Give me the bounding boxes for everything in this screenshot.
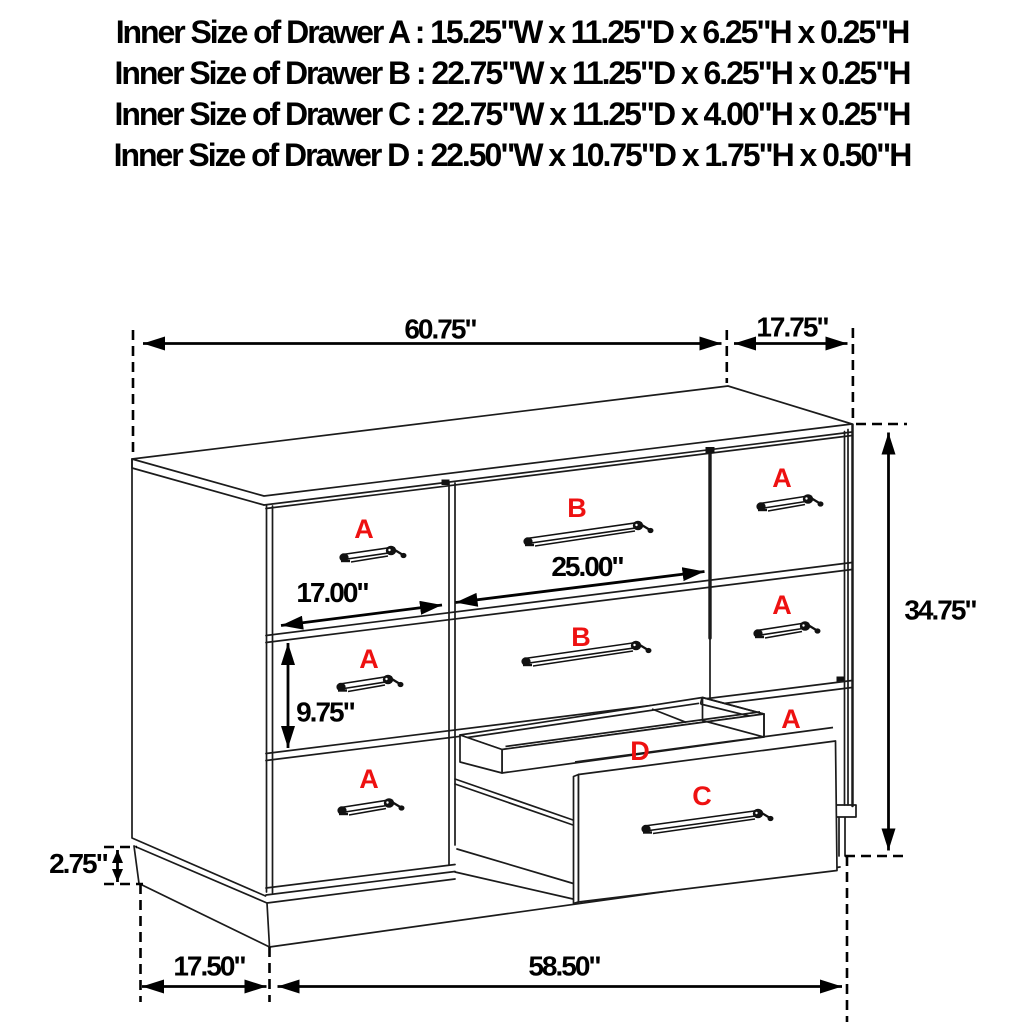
svg-text:2.75": 2.75" [49, 848, 107, 879]
svg-text:17.50": 17.50" [173, 951, 245, 982]
svg-text:A: A [772, 590, 792, 620]
svg-text:A: A [359, 644, 379, 674]
svg-text:17.00": 17.00" [296, 577, 368, 608]
svg-text:58.50": 58.50" [528, 951, 600, 982]
svg-text:Inner Size of Drawer A : 15.25: Inner Size of Drawer A : 15.25"W x 11.25… [116, 14, 909, 50]
svg-text:D: D [630, 736, 650, 766]
svg-text:A: A [772, 463, 792, 493]
svg-text:25.00": 25.00" [551, 551, 623, 582]
svg-text:A: A [354, 514, 374, 544]
svg-text:B: B [567, 493, 587, 523]
svg-text:17.75": 17.75" [756, 312, 828, 343]
svg-text:9.75": 9.75" [296, 697, 354, 728]
svg-text:A: A [359, 764, 379, 794]
svg-text:Inner Size of Drawer D : 22.5: Inner Size of Drawer D : 22.50"W x 10.75… [114, 137, 911, 173]
svg-text:60.75": 60.75" [404, 314, 476, 345]
svg-text:Inner Size of Drawer C : 22.75: Inner Size of Drawer C : 22.75"W x 11.25… [115, 96, 910, 132]
svg-text:A: A [781, 704, 801, 734]
svg-text:C: C [692, 781, 712, 811]
svg-text:B: B [571, 622, 591, 652]
svg-text:Inner Size of Drawer B : 22.75: Inner Size of Drawer B : 22.75"W x 11.25… [115, 55, 910, 91]
svg-text:34.75": 34.75" [904, 595, 976, 626]
